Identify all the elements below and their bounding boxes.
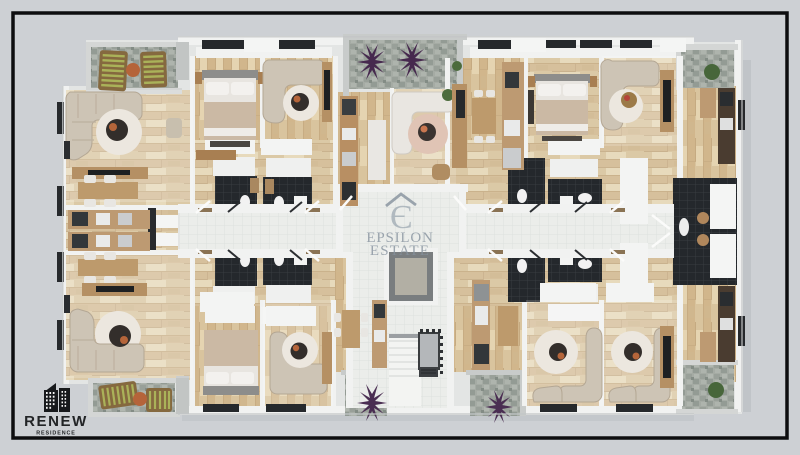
svg-text:RENEW: RENEW: [24, 413, 88, 430]
svg-text:ESTATE: ESTATE: [370, 243, 430, 259]
svg-text:RESIDENCE: RESIDENCE: [36, 431, 76, 437]
